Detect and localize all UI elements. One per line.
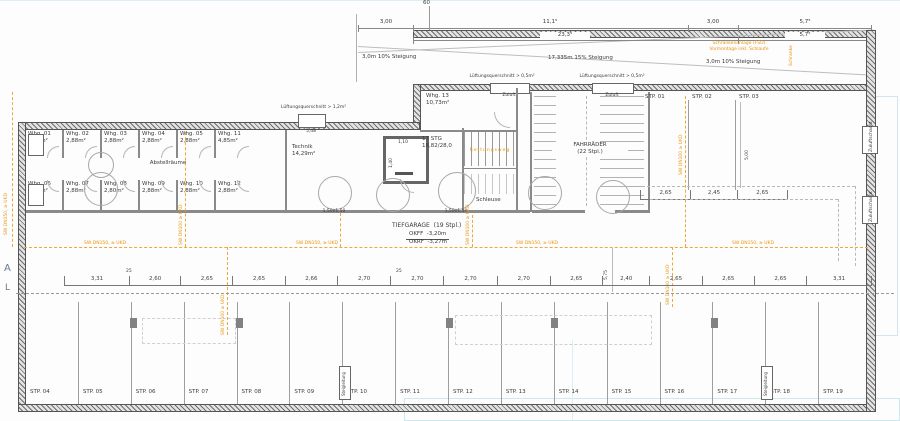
barrier-note-line2: Vormontage inkl. Schlaufe [695,47,783,53]
dim-value: 2,70 [444,276,497,285]
whg13-door-arc [494,112,510,128]
parking-stall: STP. 02 [689,100,736,190]
storage-bottom-row: Whg. 062,80m² Whg. 072,88m² Whg. 082,80m… [26,180,252,210]
stall-label: STP. 03 [739,94,759,101]
room-name: Whg. 02 [66,131,100,138]
parking-stall: STP. 08 [238,302,291,404]
dim-value: 2,65 [233,276,285,285]
column [711,318,718,328]
sewer-label: SW DN150, ≥ UKD [296,241,338,247]
sewer-branch [340,213,342,247]
drive-path-2v [838,199,840,261]
sewer-branch [472,215,474,247]
turning-circle [318,176,352,210]
schleuse-label: Schleuse [476,197,501,204]
floor-plan-canvas: 3,00 11,1⁵ 3,00 5,7⁵ 23,3⁵ 5,7⁵ 60 3,0m … [0,0,900,421]
sewer-label-vertical: SW DN150, ≥ UKD [4,193,10,235]
bottom-wall [18,404,876,412]
dim-value: 2,65 [650,276,702,285]
top-stall-vdim-line [740,102,741,188]
ramp-dim-23: 23,3⁵ [540,32,590,39]
sewer-label-vertical: SW DN100 ≥ UKD [679,135,685,176]
elevator-depth-dim: 1,40 [389,158,395,168]
storage-room: Whg. 042,88m² [140,130,178,158]
dim-value: 3,31 [64,276,130,285]
stall-label: STP. 02 [692,94,712,101]
parking-stall: STP. 10 [343,302,396,404]
sewer-label-vertical: SW DN100 ≥ UKD [466,205,472,246]
ramp-tick [413,37,414,44]
guide-hline [0,0,900,1]
air-shaft-label-1: Zuluftschacht [869,121,875,152]
stall-label: STP. 06 [136,389,156,396]
section-line [16,293,894,294]
pillar-dim: 25 [396,269,402,275]
left-wall [18,122,26,412]
vent-quer05-label-1: Lüftungsquerschnitt > 0,5m² [462,74,542,80]
room-area: 4,85m² [218,138,252,145]
ramp-dim-11: 11,1⁵ [525,19,575,26]
storage-room: Whg. 122,88m² [216,180,252,210]
ramp-dim-3a: 3,00 [366,19,406,26]
vent-quer12-label: Lüftungsquerschnitt > 1,2m² [281,105,346,111]
dim-value: 2,40 [603,276,650,285]
ramp-slope-b: 17,335m 15% Steigung [548,55,613,62]
sewer-label: SW DN150, ≥ UKD [516,241,558,247]
column [130,318,137,328]
left-wall-niche-2 [28,184,44,206]
ramp-dim-60: 60 [423,0,430,7]
sewer-main-line [24,247,868,248]
parking-stall: STP. 18 [766,302,819,404]
sewer-branch [185,132,187,247]
sewer-branch [12,92,14,247]
technik-vent-dim: 5,48 [298,129,324,135]
stall-label: STP. 12 [453,389,473,396]
parking-stall: STP. 16 [661,302,714,404]
ramp-tick [358,25,359,32]
whg13-label: Whg. 1310,73m² [426,93,449,107]
group-outline [455,315,652,345]
parking-stall: STP. 04 [26,302,79,404]
stall-label: STP. 07 [189,389,209,396]
sewer-label-vertical: SW DN100 ≥ UKD [179,205,185,246]
dim-value: 2,70 [391,276,444,285]
main-dim-chain: 3,31 2,60 2,65 2,65 2,66 2,70 2,70 2,70 … [64,276,872,286]
room-area: 2,88m² [218,188,252,195]
room-name: Whg. 04 [142,131,176,138]
level-okrf: OKRF -3,27m [406,239,450,246]
dim-value: 2,65 [755,276,807,285]
ramp-dim-57b: 5,7⁵ [785,32,825,39]
room-area: 2,88m² [142,188,176,195]
stall-label: STP. 15 [612,389,632,396]
parking-stall: STP. 11 [396,302,449,404]
sewer-branch [685,96,687,247]
technik-label: Technik14,29m² [292,144,315,158]
storage-top-wall [18,122,420,130]
ramp-bottom-wall [420,84,870,91]
garage-title: TIEFGARAGE (19 Stpl.) [392,222,461,230]
riser-label: Steigleitung [763,372,768,396]
dim-value: 2,65 [640,190,691,199]
dim-value: 2,60 [130,276,181,285]
barrier-note-line1: Schrankenanlage (FSO) [695,41,783,47]
riser-label: Steigleitung [341,372,346,396]
parking-stall: STP. 05 [79,302,132,404]
dim-value: 3,31 [807,276,872,285]
top-stalls: STP. 01 STP. 02 STP. 03 [642,100,782,190]
barrier-note-vertical: Schranke [789,45,795,66]
room-area: 2,88m² [104,138,138,145]
corridor-label: Abstellräume [128,160,208,167]
stall-label: STP. 13 [506,389,526,396]
dim-value: 2,70 [498,276,551,285]
stall-label: STP. 18 [770,389,790,396]
top-stall-vdim: 5,00 [745,150,751,160]
stall-label: STP. 17 [717,389,737,396]
bike-room-south-wall-a [532,210,585,213]
turning-circle-dim: 1,50x1,50 [318,209,350,215]
technik-vent-box [298,114,326,128]
elevator-sill [395,172,413,175]
stall-label: STP. 04 [30,389,50,396]
whg13-area: 10,73m² [426,100,449,106]
stall-label: STP. 19 [823,389,843,396]
sewer-label: SW DN150, ≥ UKD [84,241,126,247]
bike-room-label: FAHRRÄDER (22 Stpl.) [552,142,628,156]
turning-circle [84,172,118,206]
parking-stall: STP. 17 [713,302,766,404]
stall-label: STP. 09 [294,389,314,396]
stall-label: STP. 01 [645,94,665,101]
room-name: Whg. 12 [218,181,252,188]
sewer-label: SW DN150, ≥ UKD [732,241,774,247]
turning-circle [528,176,562,210]
ramp-slope-a: 3,0m 10% Steigung [362,54,416,61]
vent-quer05-label-2: Lüftungsquerschnitt > 0,5m² [572,74,652,80]
technik-area: 14,29m² [292,151,315,157]
stall-label: STP. 05 [83,389,103,396]
ramp-slope-c: 3,0m 10% Steigung [706,59,760,66]
column [446,318,453,328]
storage-room: Whg. 052,88m² [178,130,216,158]
drive-path-1v [855,186,857,266]
zuluft-label-1: Zuluft [490,93,528,99]
ramp-tick [738,25,739,32]
escape-route-label: Rettungsweg [462,148,518,154]
stair-label: 17 STG 18,82/28,0 [422,136,452,150]
section-marker-l: L [5,283,10,293]
ramp-tick [688,25,689,32]
dim-value: 2,70 [338,276,391,285]
column [236,318,243,328]
air-shaft-label-2: Zuluftschacht [869,191,875,222]
room-name: Whg. 09 [142,181,176,188]
room-area: 2,88m² [142,138,176,145]
stair-landing-line [464,168,516,169]
ramp-tick [413,25,414,32]
whg13-name: Whg. 13 [426,93,449,99]
left-wall-niche-1 [28,134,44,156]
parking-stall: STP. 03 [736,100,782,190]
drive-path-1h [642,186,855,187]
storage-room: Whg. 114,85m² [216,130,252,158]
dim-value: 2,65 [551,276,603,285]
drive-path-2h [650,199,838,200]
section-marker-a: A [4,263,11,274]
dim-value: 2,65 [703,276,755,285]
ramp-dimline-2 [413,40,872,41]
turning-circle [596,180,630,214]
room-area: 2,88m² [66,138,100,145]
storage-room: Whg. 092,88m² [140,180,178,210]
technik-name: Technik [292,144,313,150]
dim-value: 2,45 [691,190,738,199]
pillar-dim: 25 [126,269,132,275]
dim-value: 2,65 [738,190,788,199]
stall-label: STP. 14 [559,389,579,396]
stall-label: STP. 08 [242,389,262,396]
ramp-dim-3b: 3,00 [693,19,733,26]
elevator-width-dim: 1,10 [385,140,421,146]
stall-label: STP. 16 [665,389,685,396]
turning-circle [376,178,410,212]
technik-west-wall [285,130,287,210]
room-name: Whg. 03 [104,131,138,138]
storage-top-row: Whg. 012,88m² Whg. 022,88m² Whg. 032,88m… [26,130,252,158]
parking-stall: STP. 19 [819,302,871,404]
group-outline [142,318,236,344]
parking-stall: STP. 09 [290,302,343,404]
dim-value: 2,66 [286,276,338,285]
stall-label: STP. 11 [400,389,420,396]
room-name: Whg. 11 [218,131,252,138]
ramp-leader-line [429,6,430,30]
ramp-dim-57a: 5,7⁵ [785,19,825,26]
ramp-dimline-1 [358,28,872,29]
ramp-start-line [356,14,357,82]
dim-value: 2,65 [181,276,233,285]
ramp-edge-lower [358,46,873,76]
